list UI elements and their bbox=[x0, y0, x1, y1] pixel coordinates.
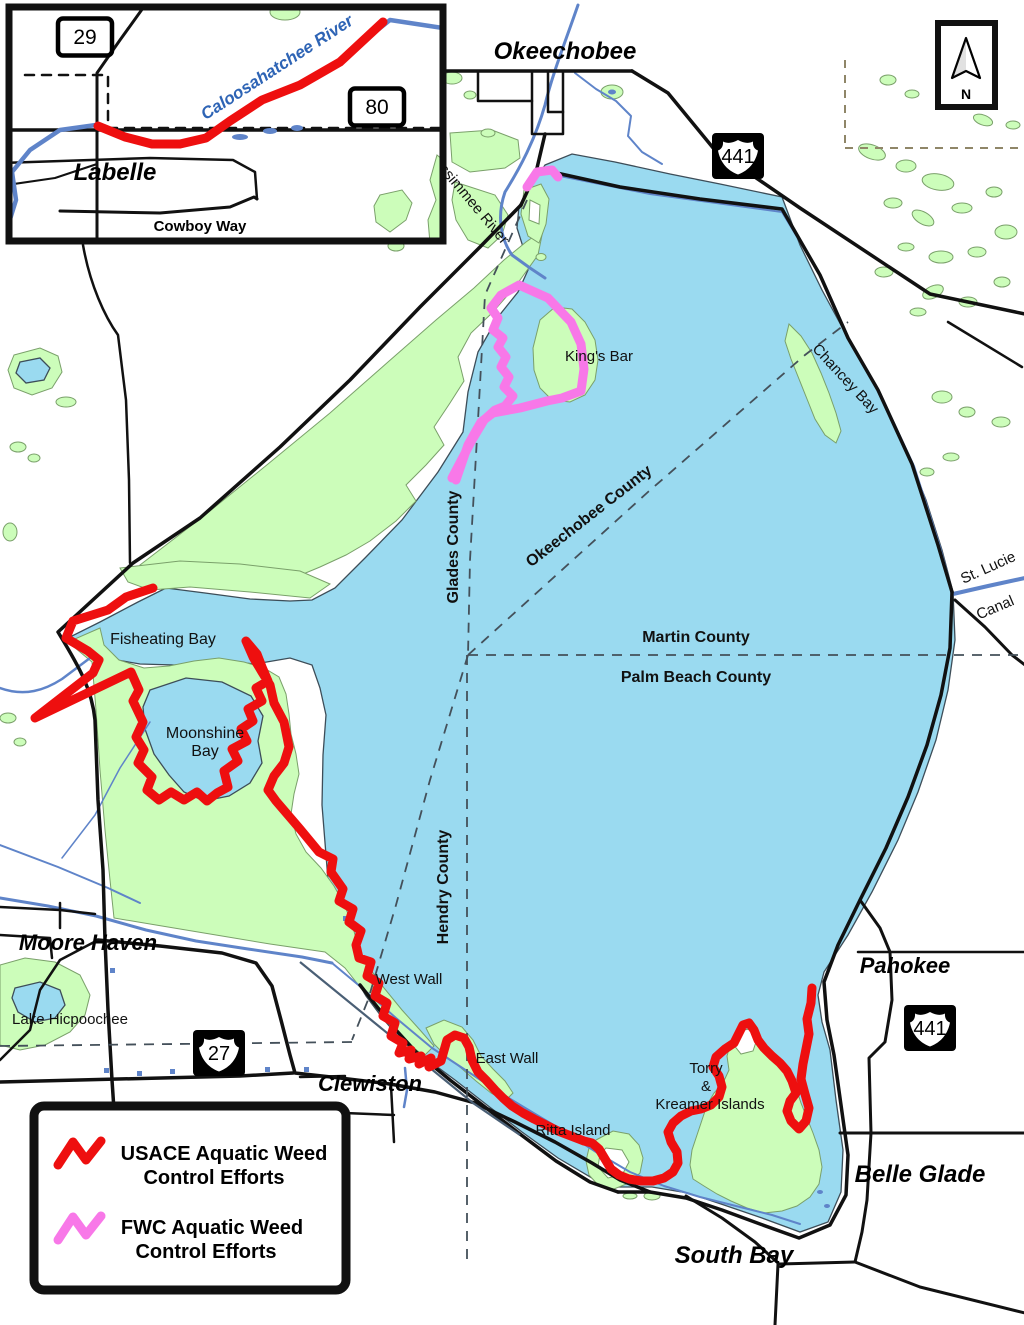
islet bbox=[536, 254, 546, 261]
us441-shield-north: 441 bbox=[712, 133, 764, 179]
us441-shield-south: 441 bbox=[904, 1005, 956, 1051]
label-cowboy-way: Cowboy Way bbox=[154, 218, 247, 235]
inset-map: Caloosahatchee River Labelle Cowboy Way … bbox=[0, 4, 443, 243]
legend-fwc-line2: Control Efforts bbox=[135, 1241, 276, 1263]
label-moonshine: Moonshine bbox=[166, 725, 244, 742]
label-labelle: Labelle bbox=[74, 159, 157, 186]
label-fisheating-bay: Fisheating Bay bbox=[110, 631, 216, 648]
legend-fwc-line1: FWC Aquatic Weed bbox=[121, 1217, 303, 1239]
legend-usace-line2: Control Efforts bbox=[143, 1167, 284, 1189]
label-moonshine-bay: Bay bbox=[191, 743, 219, 760]
sr80-number: 80 bbox=[365, 96, 388, 119]
label-okeechobee: Okeechobee bbox=[494, 38, 637, 65]
label-palm-beach-county: Palm Beach County bbox=[621, 669, 771, 686]
us441-south-number: 441 bbox=[913, 1018, 946, 1040]
label-moore-haven: Moore Haven bbox=[19, 930, 157, 955]
label-kings-bar: King's Bar bbox=[565, 348, 633, 365]
label-lake-hicpoochee: Lake Hicpoochee bbox=[12, 1011, 128, 1028]
label-south-bay: South Bay bbox=[675, 1242, 795, 1269]
sr80-shield: 80 bbox=[350, 89, 404, 126]
north-arrow: N bbox=[938, 23, 995, 107]
us27-number: 27 bbox=[208, 1043, 230, 1065]
label-torry: Torry bbox=[689, 1060, 723, 1077]
label-belle-glade: Belle Glade bbox=[855, 1161, 986, 1188]
legend-usace-line1: USACE Aquatic Weed bbox=[121, 1143, 328, 1165]
label-glades-county: Glades County bbox=[445, 490, 462, 603]
north-label: N bbox=[961, 86, 971, 102]
label-amp: & bbox=[701, 1078, 711, 1095]
label-clewiston: Clewiston bbox=[318, 1071, 422, 1096]
label-east-wall: East Wall bbox=[476, 1050, 539, 1067]
label-west-wall: West Wall bbox=[376, 971, 443, 988]
us27-shield: 27 bbox=[193, 1030, 245, 1076]
label-kreamer-islands: Kreamer Islands bbox=[655, 1096, 764, 1113]
sr29-number: 29 bbox=[73, 26, 96, 49]
sr29-shield: 29 bbox=[58, 19, 112, 56]
label-ritta-island: Ritta Island bbox=[535, 1122, 610, 1139]
label-martin-county: Martin County bbox=[642, 629, 750, 646]
us441-north-number: 441 bbox=[721, 146, 754, 168]
map-svg: Okeechobee Moore Haven Clewiston Pahokee… bbox=[0, 0, 1024, 1325]
label-canal: Canal bbox=[974, 592, 1017, 623]
label-hendry-county: Hendry County bbox=[435, 830, 452, 945]
label-pahokee: Pahokee bbox=[860, 953, 951, 978]
legend: USACE Aquatic Weed Control Efforts FWC A… bbox=[34, 1106, 346, 1290]
